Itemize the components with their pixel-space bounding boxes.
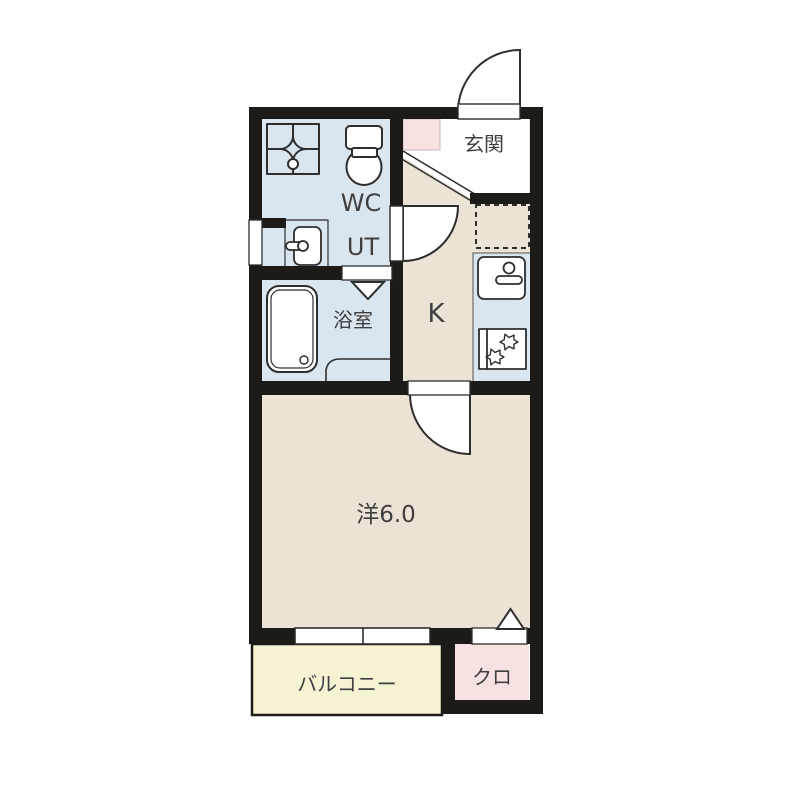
entry-door-leaf (458, 104, 520, 119)
wall-bottom-left (249, 628, 295, 644)
wc-door-leaf (390, 206, 403, 261)
wall-right (530, 107, 543, 714)
bathtub-icon (267, 286, 317, 372)
wall-room-top-left (249, 381, 408, 395)
utility-label: UT (347, 233, 380, 261)
kitchen-label: K (427, 299, 445, 329)
wall-left-lower (249, 265, 262, 644)
entrance-label: 玄関 (464, 132, 504, 156)
wall-bottom-right (527, 628, 542, 644)
floor-plan: 玄関 WC UT 浴室 K 洋6.0 バルコニー クロ (0, 0, 800, 800)
floor-plan-canvas: 玄関 WC UT 浴室 K 洋6.0 バルコニー クロ (0, 0, 800, 800)
wc-label: WC (341, 189, 382, 217)
entry-door-swing-icon (458, 50, 520, 112)
wall-wc-hall-upper (390, 107, 403, 207)
western-room-label: 洋6.0 (356, 502, 416, 528)
kitchen-sink-icon (478, 257, 525, 299)
shoe-cabinet (403, 119, 440, 150)
wall-alcove-stub (261, 218, 286, 228)
wall-entrance-bottom (470, 193, 530, 204)
balcony-label: バルコニー (297, 672, 397, 696)
room-door-opening (408, 381, 470, 395)
wall-bath-top-left (249, 266, 342, 280)
stove-icon (479, 329, 526, 369)
side-window-icon (249, 220, 262, 265)
wall-left-upper (249, 107, 262, 220)
balcony-window-icon (295, 628, 430, 644)
wall-top-left (249, 107, 458, 119)
bathroom-label: 浴室 (333, 308, 373, 332)
bath-door-threshold (342, 266, 392, 280)
wall-closet-bottom (441, 700, 542, 714)
closet-door-opening (472, 628, 527, 644)
wall-bath-top-right (392, 266, 403, 280)
wall-room-top-right (468, 381, 542, 395)
closet-label: クロ (472, 665, 512, 689)
wall-wc-hall-lower (390, 261, 403, 395)
toilet-icon (346, 126, 382, 185)
